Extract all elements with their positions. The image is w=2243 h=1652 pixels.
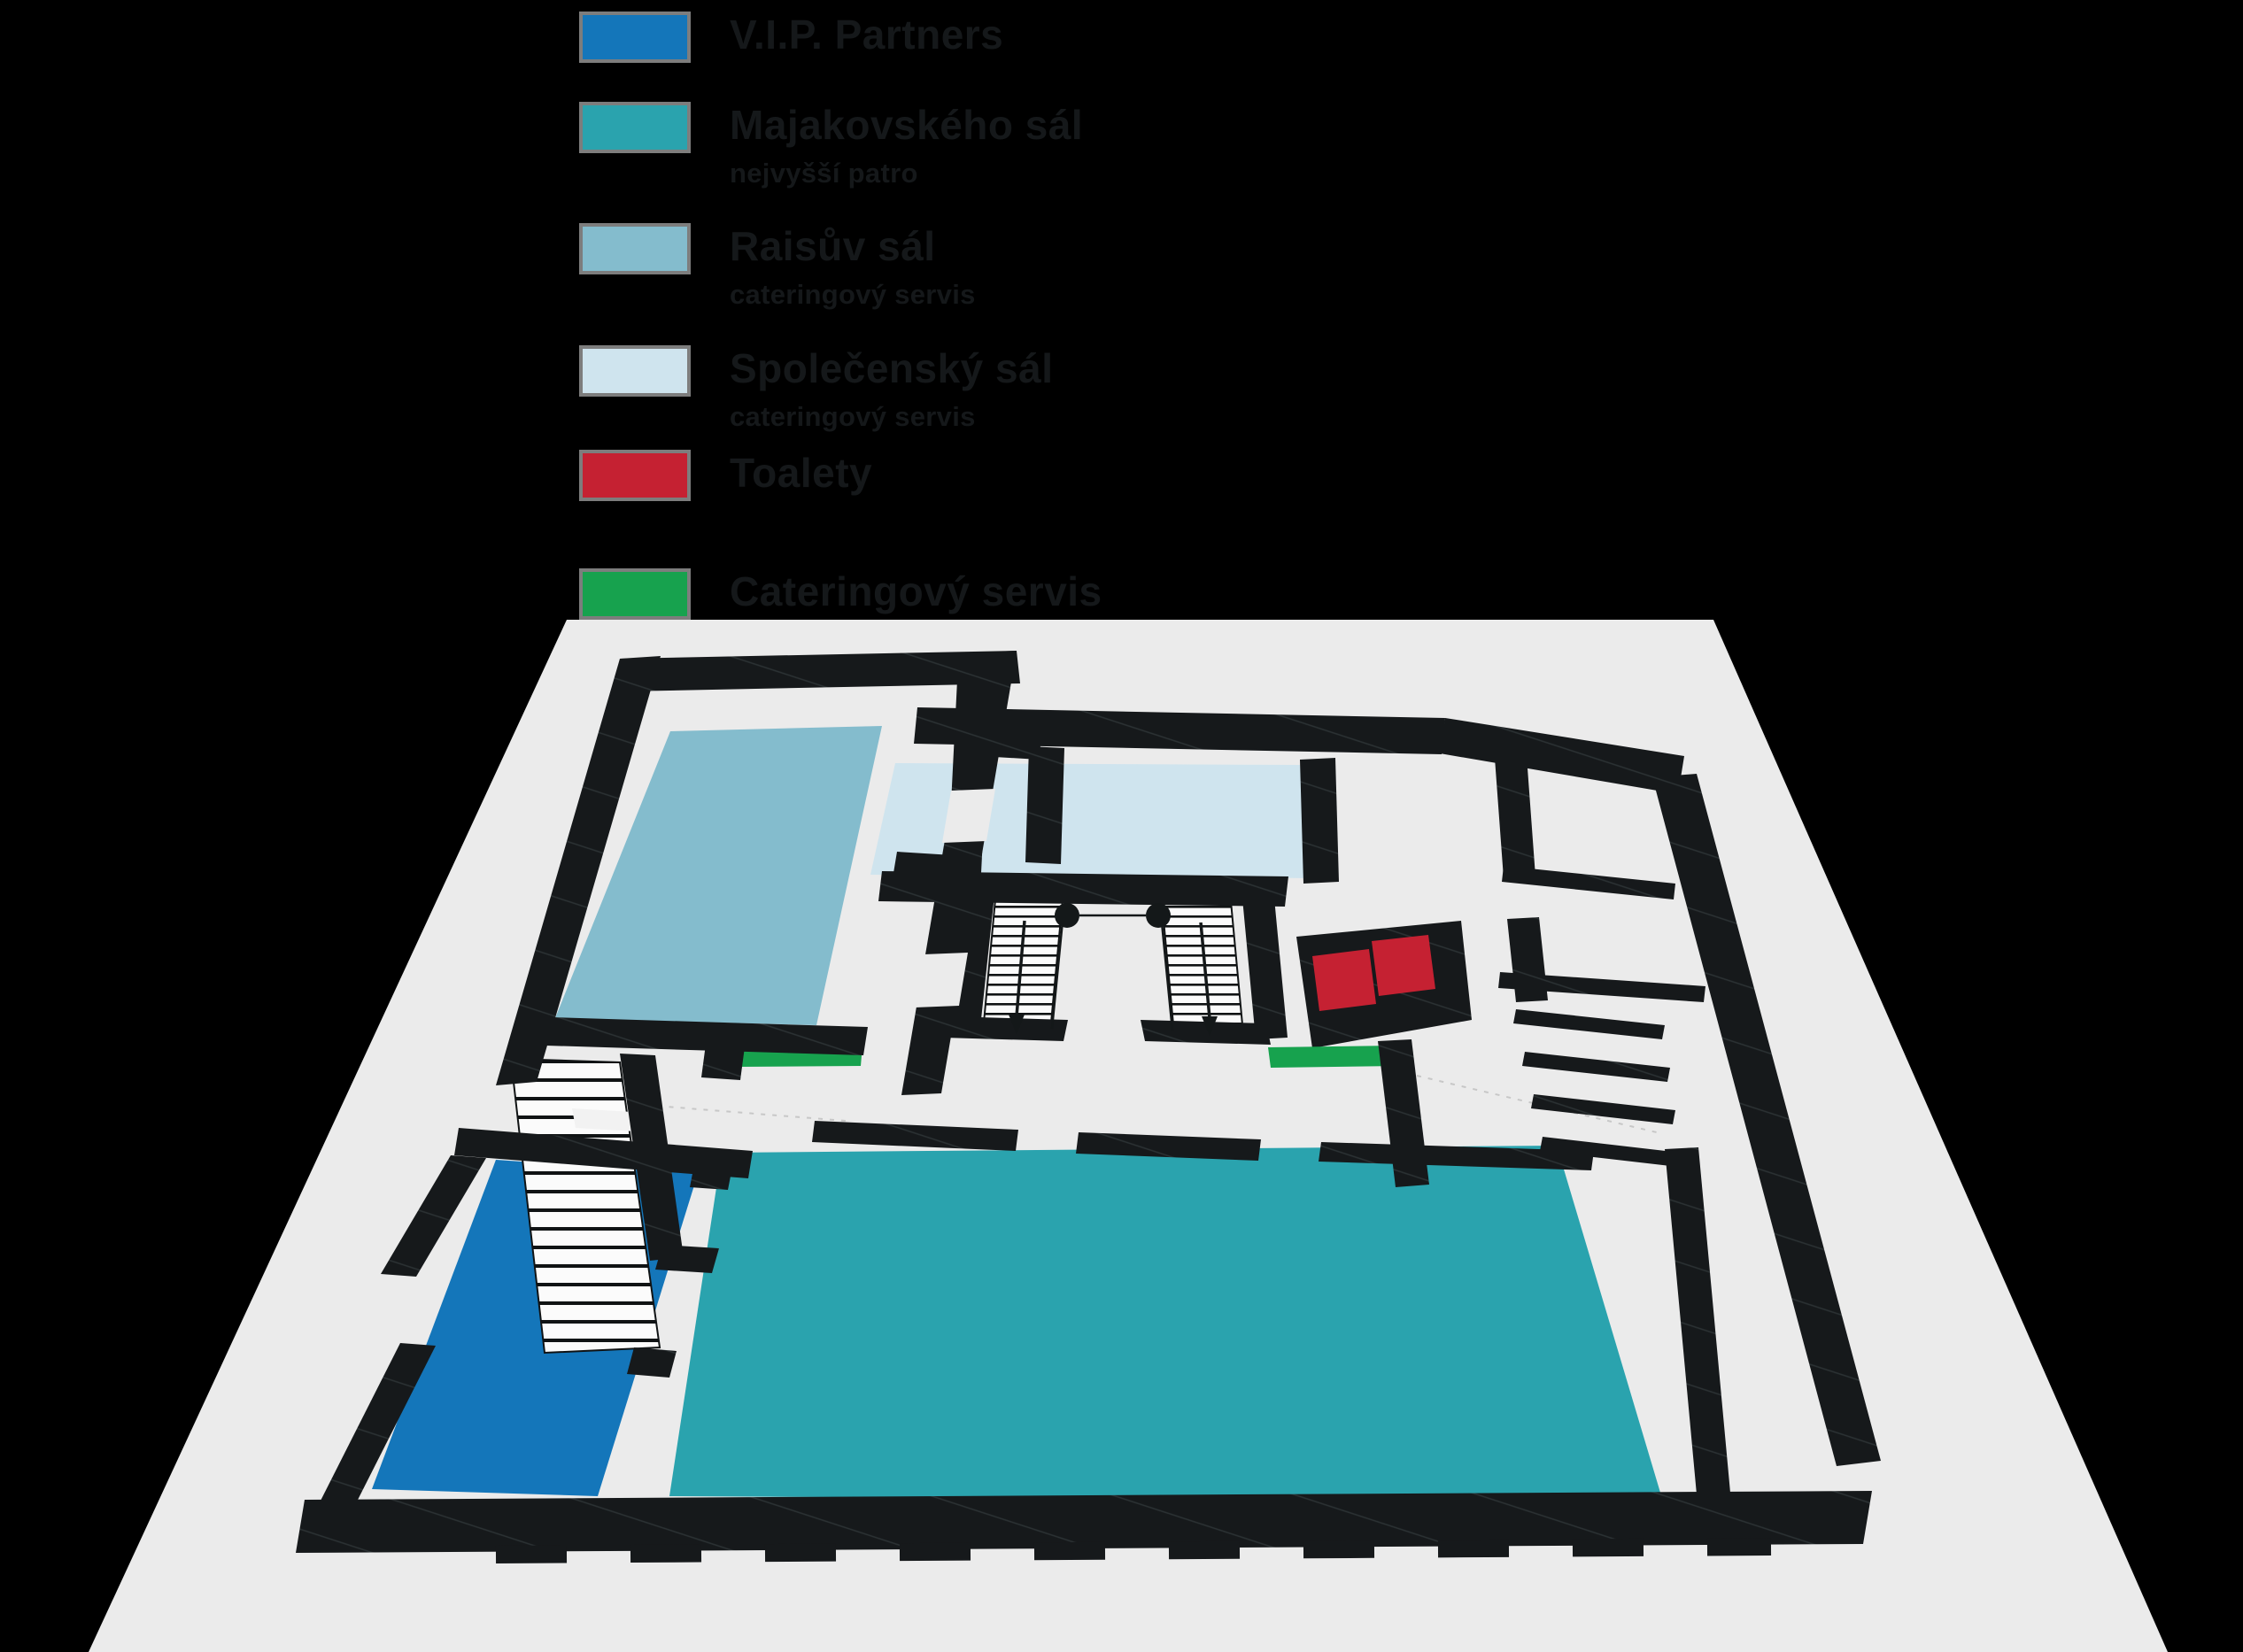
legend-sublabel-majakovskeho: nejvyšší patro <box>730 159 1083 189</box>
column-icon <box>1146 903 1171 928</box>
majakovskeho-swatch <box>579 102 691 153</box>
toalety-area-2 <box>1372 935 1435 996</box>
legend-sublabel-spolecensky: cateringový servis <box>730 403 1053 432</box>
legend-row-spolecensky: Společenský sál cateringový servis <box>579 345 1053 431</box>
central-staircase-right <box>1162 901 1243 1034</box>
legend-row-catering: Cateringový servis <box>579 568 1102 626</box>
catering-strip-right <box>1268 1046 1398 1068</box>
legend-label-catering: Cateringový servis <box>730 570 1102 614</box>
page: V.I.P. Partners Majakovského sál nejvyšš… <box>0 0 2243 1652</box>
majakovskeho-sal-area <box>669 1146 1663 1501</box>
legend-label-spolecensky: Společenský sál <box>730 347 1053 391</box>
central-staircase-left <box>983 899 1063 1032</box>
toalety-area-1 <box>1312 949 1376 1011</box>
catering-swatch <box>579 568 691 620</box>
vip-swatch <box>579 12 691 63</box>
column-icon <box>1055 903 1079 928</box>
raisuv-swatch <box>579 223 691 274</box>
legend-label-vip: V.I.P. Partners <box>730 13 1003 58</box>
legend-row-toalety: Toalety <box>579 450 872 507</box>
spolecensky-swatch <box>579 345 691 397</box>
legend-row-vip: V.I.P. Partners <box>579 12 1003 69</box>
legend-label-toalety: Toalety <box>730 452 872 496</box>
legend-row-raisuv: Raisův sál cateringový servis <box>579 223 976 309</box>
legend-sublabel-raisuv: cateringový servis <box>730 281 976 310</box>
toalety-swatch <box>579 450 691 501</box>
floor-plan <box>0 0 2243 1652</box>
legend-label-raisuv: Raisův sál <box>730 225 976 269</box>
legend-label-majakovskeho: Majakovského sál <box>730 104 1083 148</box>
legend-row-majakovskeho: Majakovského sál nejvyšší patro <box>579 102 1083 188</box>
